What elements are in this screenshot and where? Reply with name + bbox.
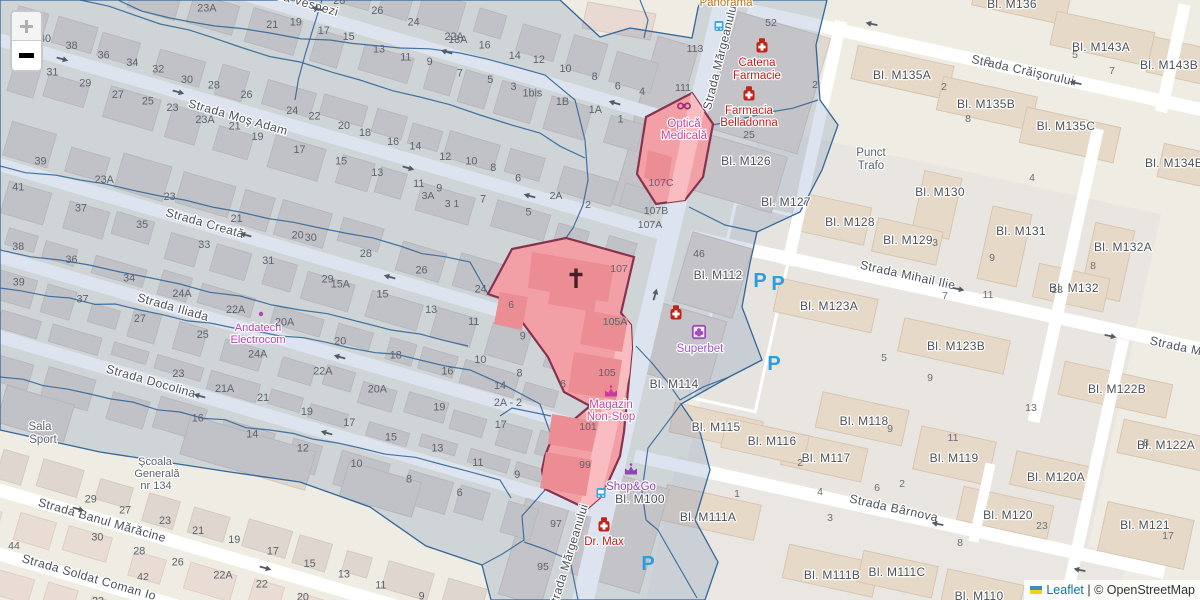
- svg-text:Superbet: Superbet: [677, 343, 724, 355]
- svg-text:21: 21: [192, 525, 204, 537]
- svg-text:Bl. M117: Bl. M117: [802, 451, 851, 465]
- svg-text:39: 39: [34, 156, 46, 168]
- svg-text:Bl. M135C: Bl. M135C: [1037, 119, 1096, 133]
- svg-text:9: 9: [520, 330, 526, 342]
- svg-text:13: 13: [1051, 284, 1063, 296]
- svg-text:6: 6: [615, 81, 621, 93]
- svg-text:26: 26: [172, 557, 184, 569]
- svg-text:Bl. M135B: Bl. M135B: [957, 97, 1015, 111]
- svg-text:17: 17: [495, 419, 507, 431]
- svg-text:9: 9: [989, 252, 995, 264]
- svg-text:95: 95: [537, 561, 549, 573]
- svg-text:17: 17: [318, 25, 330, 37]
- svg-text:13: 13: [1025, 402, 1037, 414]
- svg-text:26: 26: [241, 89, 253, 101]
- svg-text:23: 23: [92, 595, 104, 600]
- svg-text:21: 21: [266, 19, 278, 31]
- svg-text:24: 24: [408, 16, 420, 28]
- svg-text:Panorama: Panorama: [699, 0, 753, 9]
- svg-text:20: 20: [297, 592, 309, 600]
- svg-text:97: 97: [550, 518, 562, 530]
- svg-text:6: 6: [508, 299, 514, 311]
- svg-text:34: 34: [126, 57, 138, 69]
- svg-text:31: 31: [262, 255, 274, 267]
- svg-text:11: 11: [468, 316, 479, 328]
- svg-text:28: 28: [208, 79, 220, 91]
- svg-text:9: 9: [427, 56, 433, 68]
- svg-text:16: 16: [441, 366, 453, 378]
- svg-text:2: 2: [812, 79, 818, 91]
- svg-text:23A: 23A: [95, 174, 115, 186]
- svg-text:15: 15: [377, 289, 389, 301]
- svg-text:107C: 107C: [648, 177, 674, 189]
- svg-text:Sport: Sport: [29, 434, 57, 446]
- svg-text:3: 3: [827, 512, 833, 524]
- svg-text:9: 9: [927, 372, 933, 384]
- svg-text:Medicală: Medicală: [661, 130, 708, 142]
- svg-text:15: 15: [343, 31, 355, 43]
- svg-text:39: 39: [13, 277, 25, 289]
- svg-text:26: 26: [416, 265, 428, 277]
- svg-text:27: 27: [112, 89, 124, 101]
- svg-text:Punct: Punct: [856, 147, 886, 159]
- svg-text:2A - 2: 2A - 2: [494, 397, 522, 409]
- svg-text:9: 9: [419, 591, 425, 600]
- svg-text:6: 6: [515, 173, 521, 185]
- svg-text:P: P: [753, 270, 766, 292]
- svg-text:11: 11: [948, 432, 959, 444]
- svg-text:3A: 3A: [422, 190, 435, 202]
- svg-text:38: 38: [66, 40, 78, 52]
- svg-text:101: 101: [579, 421, 597, 433]
- svg-text:9: 9: [436, 183, 442, 195]
- svg-text:22: 22: [256, 579, 268, 591]
- svg-text:107: 107: [610, 263, 628, 275]
- svg-text:42: 42: [137, 571, 149, 583]
- svg-text:11: 11: [375, 580, 386, 592]
- svg-text:3: 3: [985, 55, 991, 67]
- svg-text:4: 4: [817, 486, 823, 498]
- svg-text:11: 11: [472, 457, 483, 469]
- svg-text:Bl. M120A: Bl. M120A: [1027, 470, 1085, 484]
- svg-text:27: 27: [119, 505, 131, 517]
- svg-text:19: 19: [301, 406, 313, 418]
- svg-text:23A: 23A: [195, 114, 215, 126]
- svg-text:Bl. M135A: Bl. M135A: [873, 68, 931, 82]
- svg-text:1bis: 1bis: [522, 88, 542, 100]
- svg-text:37: 37: [77, 294, 89, 306]
- svg-text:P: P: [641, 553, 654, 575]
- svg-text:Bl. M123A: Bl. M123A: [800, 299, 858, 313]
- svg-text:20A: 20A: [368, 383, 388, 395]
- svg-text:P: P: [771, 273, 784, 295]
- svg-text:24A: 24A: [172, 288, 192, 300]
- svg-text:2A: 2A: [550, 190, 563, 202]
- svg-text:19: 19: [290, 17, 302, 29]
- svg-text:13: 13: [371, 167, 383, 179]
- svg-text:23: 23: [164, 191, 176, 203]
- svg-text:46: 46: [693, 248, 705, 260]
- svg-text:21: 21: [229, 121, 241, 133]
- svg-text:17: 17: [1162, 530, 1174, 542]
- svg-text:Bl. M111B: Bl. M111B: [804, 568, 860, 582]
- svg-text:1: 1: [734, 488, 740, 500]
- svg-text:30: 30: [91, 532, 103, 544]
- svg-text:105: 105: [598, 367, 616, 379]
- svg-text:18A: 18A: [448, 34, 468, 46]
- svg-text:18: 18: [359, 127, 371, 139]
- svg-text:Bl. M128: Bl. M128: [825, 215, 875, 229]
- svg-text:20A: 20A: [275, 316, 295, 328]
- svg-text:Bl. M119: Bl. M119: [930, 451, 979, 465]
- svg-text:41: 41: [12, 181, 24, 193]
- svg-text:29: 29: [85, 494, 97, 506]
- svg-text:5: 5: [881, 352, 887, 364]
- svg-text:3: 3: [932, 237, 938, 249]
- svg-text:Bl. M143B: Bl. M143B: [1140, 58, 1198, 72]
- svg-text:4: 4: [1029, 172, 1035, 184]
- svg-text:15A: 15A: [331, 278, 351, 290]
- svg-text:2: 2: [941, 81, 947, 93]
- svg-text:1B: 1B: [556, 96, 569, 108]
- svg-text:29: 29: [79, 77, 91, 89]
- svg-text:14: 14: [409, 141, 421, 153]
- svg-text:38: 38: [12, 241, 24, 253]
- svg-text:Bl. M122B: Bl. M122B: [1088, 382, 1146, 396]
- svg-text:4: 4: [639, 86, 645, 98]
- svg-text:19: 19: [251, 131, 263, 143]
- svg-text:21: 21: [231, 213, 243, 225]
- svg-text:6: 6: [457, 487, 463, 499]
- svg-text:9: 9: [887, 423, 893, 435]
- svg-text:Bl. M111C: Bl. M111C: [869, 565, 926, 579]
- svg-text:8: 8: [965, 113, 971, 125]
- svg-text:13: 13: [373, 44, 385, 56]
- svg-text:11: 11: [983, 289, 994, 301]
- svg-text:21A: 21A: [215, 383, 235, 395]
- svg-text:99: 99: [579, 459, 591, 471]
- svg-text:Bl. M129: Bl. M129: [883, 233, 933, 247]
- svg-text:52: 52: [765, 17, 777, 29]
- svg-text:Electrocom: Electrocom: [230, 334, 285, 346]
- svg-text:10: 10: [560, 63, 572, 75]
- svg-text:Trafo: Trafo: [858, 160, 884, 172]
- svg-text:23: 23: [1036, 520, 1048, 532]
- svg-text:28: 28: [133, 546, 145, 558]
- svg-text:Optică: Optică: [667, 118, 701, 130]
- svg-text:18: 18: [390, 349, 402, 361]
- svg-text:113: 113: [687, 43, 704, 55]
- svg-text:36: 36: [66, 254, 78, 266]
- svg-text:Farmacia: Farmacia: [725, 105, 774, 117]
- svg-text:12: 12: [439, 151, 451, 163]
- svg-text:22: 22: [309, 111, 321, 123]
- svg-text:6: 6: [874, 482, 880, 494]
- svg-text:Farmacie: Farmacie: [733, 70, 781, 82]
- svg-text:Bl. M131: Bl. M131: [996, 224, 1046, 238]
- svg-text:5: 5: [487, 74, 493, 86]
- svg-text:Bl. M126: Bl. M126: [721, 154, 771, 168]
- svg-text:10: 10: [350, 458, 362, 470]
- svg-text:12: 12: [297, 442, 309, 454]
- svg-text:5: 5: [1072, 49, 1078, 61]
- svg-text:7: 7: [457, 68, 463, 80]
- svg-text:Bl. M123B: Bl. M123B: [927, 339, 985, 353]
- svg-text:6: 6: [560, 378, 566, 390]
- svg-text:11: 11: [413, 178, 424, 190]
- svg-text:34: 34: [123, 273, 135, 285]
- svg-text:Bl. M114: Bl. M114: [650, 377, 699, 391]
- svg-text:17: 17: [294, 144, 306, 156]
- svg-text:Bl. M132A: Bl. M132A: [1094, 240, 1152, 254]
- svg-text:36: 36: [98, 50, 110, 62]
- svg-text:8: 8: [1090, 260, 1096, 272]
- svg-text:105A: 105A: [603, 316, 628, 328]
- svg-text:10: 10: [474, 354, 486, 366]
- svg-text:35: 35: [136, 219, 148, 231]
- svg-text:25: 25: [142, 95, 154, 107]
- svg-text:28: 28: [360, 248, 372, 260]
- svg-text:Generală: Generală: [134, 468, 180, 480]
- svg-text:2: 2: [899, 478, 905, 490]
- svg-text:16: 16: [192, 412, 204, 424]
- svg-text:nr 134: nr 134: [140, 480, 171, 492]
- svg-text:21: 21: [257, 392, 269, 404]
- svg-text:17: 17: [343, 417, 355, 429]
- svg-text:2: 2: [797, 457, 803, 469]
- svg-text:P: P: [767, 353, 780, 375]
- svg-text:8: 8: [957, 537, 963, 549]
- svg-text:24: 24: [286, 105, 298, 117]
- svg-text:7: 7: [480, 194, 486, 206]
- svg-text:30: 30: [305, 232, 317, 244]
- svg-text:15: 15: [385, 431, 397, 443]
- svg-text:107B: 107B: [644, 205, 669, 217]
- svg-text:32: 32: [152, 64, 164, 76]
- svg-text:5: 5: [525, 206, 531, 218]
- svg-text:Belladonna: Belladonna: [720, 117, 778, 129]
- svg-text:Bl. M111A: Bl. M111A: [680, 510, 736, 524]
- svg-text:8: 8: [490, 162, 496, 174]
- svg-text:Sala: Sala: [28, 421, 52, 433]
- svg-text:24A: 24A: [248, 348, 268, 360]
- svg-text:1A: 1A: [589, 104, 603, 116]
- svg-text:3 1: 3 1: [445, 198, 460, 210]
- svg-text:Bl. M100: Bl. M100: [615, 492, 665, 506]
- svg-text:22A: 22A: [213, 569, 233, 581]
- svg-text:19: 19: [228, 534, 240, 546]
- svg-text:24: 24: [475, 283, 487, 295]
- svg-text:Bl. M130: Bl. M130: [915, 185, 965, 199]
- svg-text:14: 14: [494, 380, 506, 392]
- svg-text:Dr. Max: Dr. Max: [584, 536, 624, 548]
- svg-text:10: 10: [465, 155, 477, 167]
- svg-text:12: 12: [533, 54, 545, 66]
- svg-text:20: 20: [334, 335, 346, 347]
- svg-text:Magazin: Magazin: [589, 399, 632, 411]
- svg-text:14: 14: [246, 428, 258, 440]
- svg-text:25: 25: [197, 329, 209, 341]
- svg-text:Catena: Catena: [738, 57, 776, 69]
- svg-text:3: 3: [510, 81, 516, 93]
- svg-text:13: 13: [338, 568, 350, 580]
- svg-text:8: 8: [592, 71, 598, 83]
- svg-text:Bl. M120: Bl. M120: [983, 508, 1033, 522]
- svg-text:1: 1: [618, 114, 624, 126]
- svg-text:Bl. M136: Bl. M136: [987, 0, 1037, 11]
- svg-text:44: 44: [8, 540, 20, 552]
- svg-text:8: 8: [1143, 437, 1149, 449]
- svg-text:Shop&Go: Shop&Go: [606, 481, 656, 493]
- svg-text:Bl. M115: Bl. M115: [692, 420, 741, 434]
- svg-text:22A: 22A: [226, 304, 246, 316]
- svg-text:16: 16: [387, 136, 399, 148]
- svg-text:7: 7: [942, 290, 948, 302]
- svg-text:Bl. M143A: Bl. M143A: [1072, 40, 1130, 54]
- svg-text:33: 33: [198, 239, 210, 251]
- svg-text:8: 8: [516, 368, 522, 380]
- svg-text:31: 31: [46, 66, 58, 78]
- svg-text:26: 26: [371, 5, 383, 17]
- svg-text:23A: 23A: [197, 3, 217, 15]
- svg-text:Bl. M116: Bl. M116: [748, 434, 797, 448]
- svg-text:19: 19: [433, 401, 445, 413]
- svg-text:16: 16: [479, 39, 491, 51]
- svg-text:11: 11: [400, 52, 411, 64]
- svg-text:107A: 107A: [638, 219, 663, 231]
- svg-text:Bl. M112: Bl. M112: [694, 268, 743, 282]
- svg-text:Bl. M134B: Bl. M134B: [1145, 156, 1200, 170]
- svg-text:30: 30: [181, 74, 193, 86]
- svg-text:27: 27: [134, 313, 146, 325]
- svg-text:23: 23: [172, 368, 184, 380]
- svg-text:13: 13: [431, 442, 443, 454]
- svg-text:Bl. M118: Bl. M118: [840, 414, 889, 428]
- svg-text:23: 23: [159, 515, 171, 527]
- svg-text:8: 8: [406, 474, 412, 486]
- svg-text:111: 111: [675, 82, 691, 94]
- svg-text:15: 15: [304, 558, 316, 570]
- svg-text:2: 2: [585, 199, 591, 211]
- svg-text:37: 37: [75, 202, 87, 214]
- svg-text:Bl. M110: Bl. M110: [955, 589, 1004, 600]
- svg-text:22A: 22A: [313, 366, 333, 378]
- svg-text:9: 9: [514, 469, 520, 481]
- svg-text:25: 25: [743, 129, 755, 141]
- svg-text:Bl. M127: Bl. M127: [761, 195, 811, 209]
- svg-text:17: 17: [267, 545, 279, 557]
- svg-text:20: 20: [292, 230, 304, 242]
- svg-text:15: 15: [335, 156, 347, 168]
- svg-text:28: 28: [333, 0, 345, 7]
- svg-text:23: 23: [166, 102, 178, 114]
- svg-text:13: 13: [425, 304, 437, 316]
- svg-text:7: 7: [1109, 65, 1115, 77]
- svg-text:Şcoala: Şcoala: [138, 456, 173, 468]
- svg-text:20: 20: [338, 120, 350, 132]
- svg-text:14: 14: [509, 50, 521, 62]
